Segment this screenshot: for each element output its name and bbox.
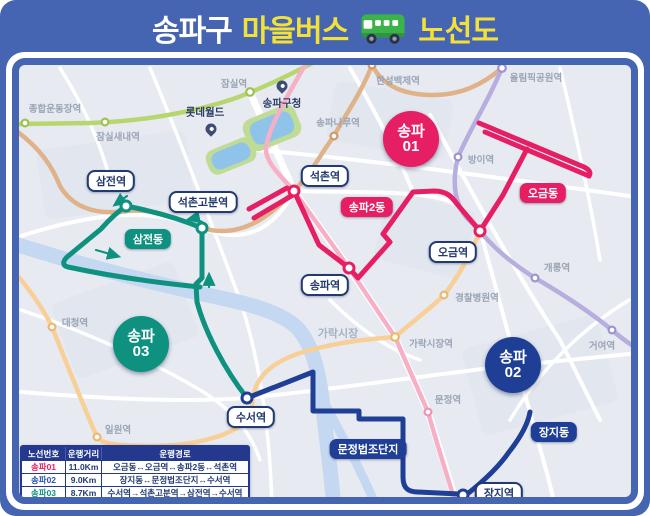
route-path: 수서역→석촌고분역→삼전역→수서역 [102,487,248,499]
route-badge-songpa03: 송파 03 [113,316,169,372]
map-frame: 종합운동장역 잠실새내역 잠실역 송파나루역 한성백제역 올림픽공원역 방이역 … [6,52,644,510]
metro-station-label: 송파나루역 [316,115,360,129]
metro-station-label: 올림픽공원역 [510,70,562,84]
title-highlight: 마을버스 [242,6,348,50]
metro-station-label: 한성백제역 [376,73,420,87]
poi-label: 롯데월드 [186,105,225,120]
table-header: 운행거리 [66,447,102,460]
title-suffix: 노선도 [418,6,498,50]
route-badge-name: 송파 [499,350,527,365]
route-distance: 9.0Km [66,474,102,486]
area-label: 가락시장 [318,325,358,341]
poi-label: 송파구청 [263,96,302,111]
terminus-label: 문정법조단지 [330,439,407,459]
route-number: 송파02 [22,474,66,486]
map-border: 종합운동장역 잠실새내역 잠실역 송파나루역 한성백제역 올림픽공원역 방이역 … [12,58,638,504]
metro-station-label: 경찰병원역 [455,290,499,304]
route-distance: 11.0Km [66,461,102,473]
route-badge-name: 송파 [397,124,425,139]
table-header: 운행경로 [102,447,248,460]
terminus-label: 오금동 [520,183,566,203]
bus-stop-label: 송파역 [301,274,349,296]
metro-station-label: 종합운동장역 [29,101,81,115]
map: 종합운동장역 잠실새내역 잠실역 송파나루역 한성백제역 올림픽공원역 방이역 … [19,65,631,497]
metro-station-label: 일원역 [105,422,131,436]
route-info-table: 노선번호 운행거리 운행경로 송파01 11.0Km 오금동↔오금역↔송파2동↔… [20,445,250,501]
terminus-label: 송파2동 [341,197,393,217]
route-badge-name: 송파 [127,329,155,344]
table-row: 송파02 9.0Km 장지동↔문정법조단지↔수서역 [22,473,248,486]
bus-stop-label: 장지역 [475,482,523,504]
route-badge-songpa02: 송파 02 [485,337,541,393]
table-header: 노선번호 [22,447,66,460]
metro-station-label: 대청역 [62,315,88,329]
table-row: 송파03 8.7Km 수서역→석촌고분역→삼전역→수서역 [22,486,248,499]
metro-station-label: 잠실새내역 [96,129,140,143]
route-badge-songpa01: 송파 01 [383,111,439,167]
route-number: 송파01 [22,461,66,473]
bus-stop-label: 석촌역 [301,165,349,187]
route-path: 장지동↔문정법조단지↔수서역 [102,474,248,486]
title-bar: 송파구 마을버스 노선도 [0,0,650,56]
metro-station-label: 거여역 [589,338,615,352]
table-row: 송파01 11.0Km 오금동↔오금역↔송파2동↔석촌역 [22,460,248,473]
metro-station-label: 개롱역 [544,260,570,274]
metro-station-label: 가락시장역 [409,336,453,350]
route-distance: 8.7Km [66,487,102,499]
bus-stop-label: 수서역 [227,406,275,428]
terminus-label: 장지동 [531,422,577,442]
metro-station-label: 잠실역 [221,76,247,90]
terminus-label: 삼전동 [125,229,171,249]
bus-stop-label: 삼전역 [87,170,135,192]
route-path: 오금동↔오금역↔송파2동↔석촌역 [102,461,248,473]
bus-stop-label: 석촌고분역 [169,191,238,213]
route-number: 송파03 [22,487,66,499]
poster: 송파구 마을버스 노선도 [0,0,650,516]
table-header-row: 노선번호 운행거리 운행경로 [22,447,248,460]
metro-station-label: 방이역 [468,152,494,166]
route-badge-number: 02 [505,365,522,380]
bus-icon [360,11,406,45]
metro-station-label: 문정역 [435,392,461,406]
route-badge-number: 03 [133,344,150,359]
bus-stop-label: 오금역 [429,241,477,263]
route-badge-number: 01 [403,139,420,154]
title-prefix: 송파구 [152,6,232,50]
